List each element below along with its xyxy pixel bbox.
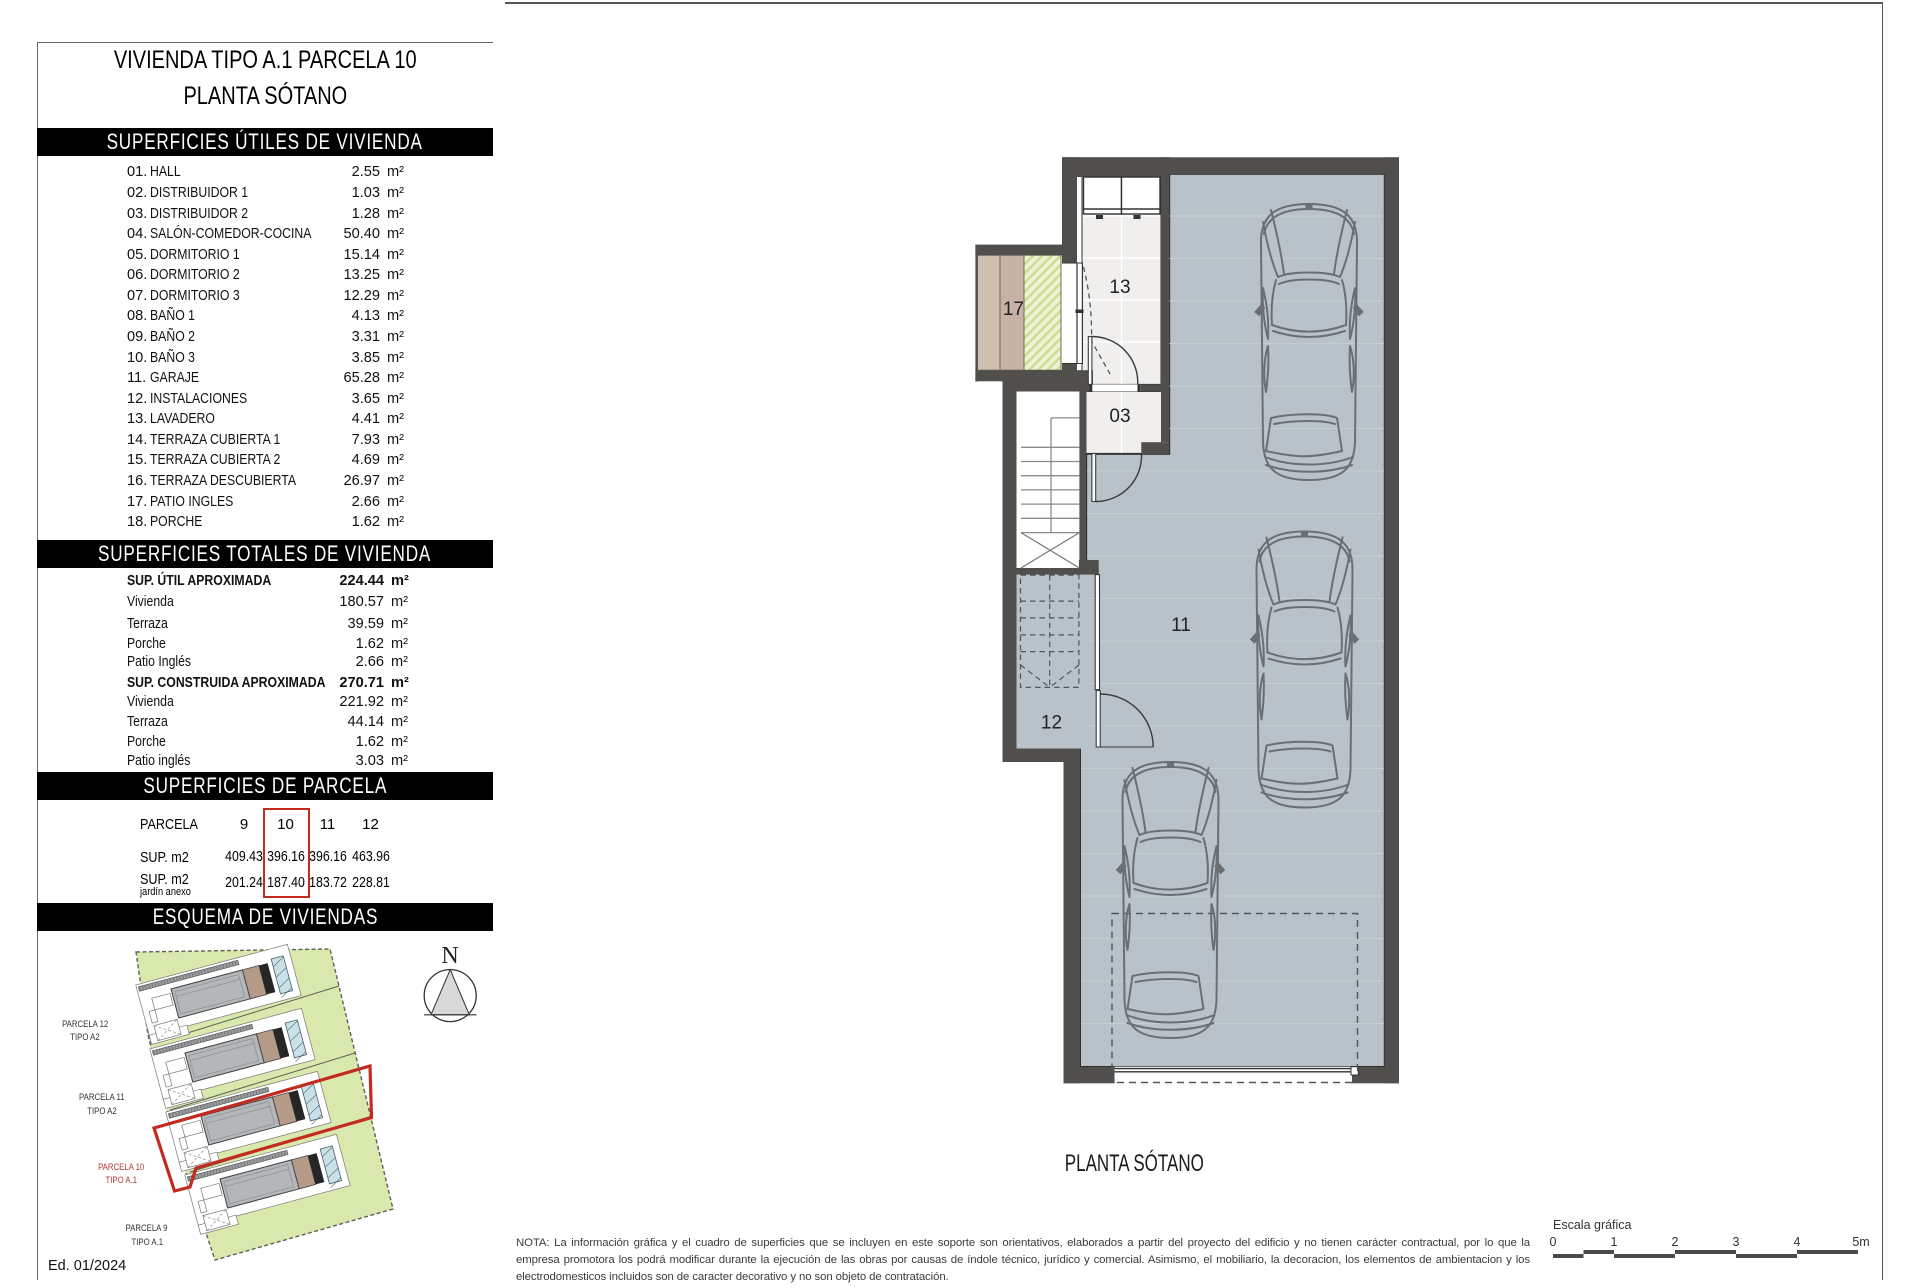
- svg-text:1: 1: [1611, 1235, 1618, 1249]
- svg-text:4: 4: [1794, 1235, 1801, 1249]
- svg-text:03: 03: [1109, 406, 1130, 427]
- svg-text:12: 12: [1041, 713, 1062, 734]
- svg-text:11: 11: [1171, 615, 1191, 636]
- svg-text:2: 2: [1672, 1235, 1679, 1249]
- svg-text:PLANTA SÓTANO: PLANTA SÓTANO: [1065, 1150, 1204, 1177]
- svg-text:3: 3: [1733, 1235, 1740, 1249]
- svg-text:13: 13: [1109, 277, 1130, 298]
- svg-text:N: N: [441, 943, 458, 969]
- svg-text:0: 0: [1550, 1235, 1557, 1249]
- svg-text:5m: 5m: [1852, 1235, 1869, 1249]
- svg-text:17: 17: [1003, 299, 1024, 320]
